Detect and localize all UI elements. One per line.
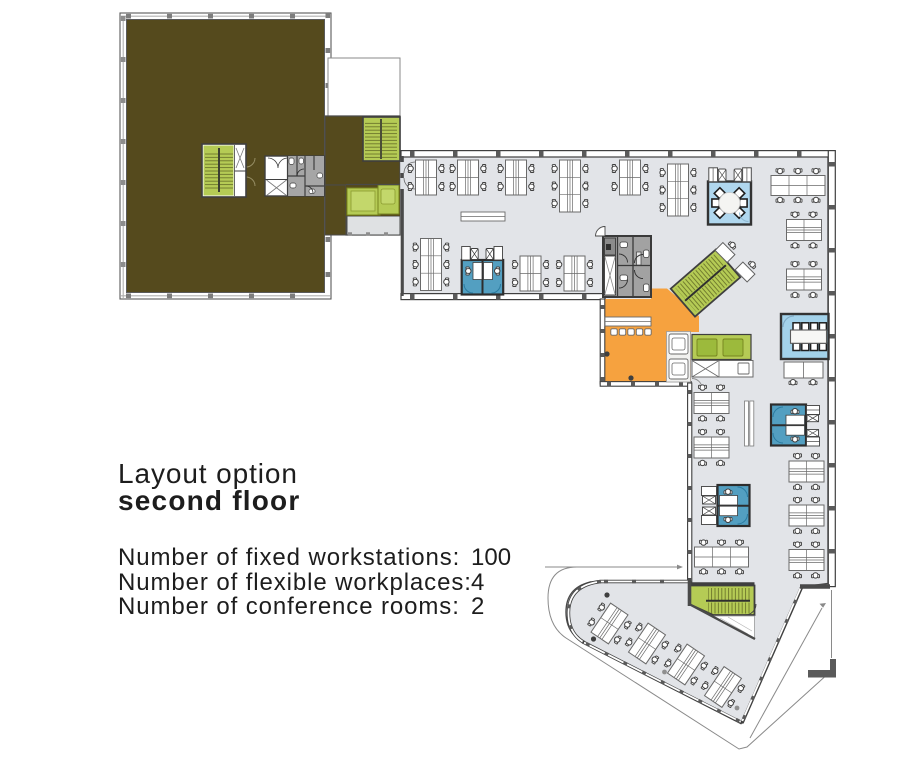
svg-text:100: 100	[471, 544, 511, 571]
svg-text:Number of flexible workplaces:: Number of flexible workplaces:	[118, 569, 472, 596]
svg-text:4: 4	[471, 569, 484, 596]
svg-text:Number of fixed workstations:: Number of fixed workstations:	[118, 544, 460, 571]
svg-text:2: 2	[471, 593, 484, 620]
svg-text:second floor: second floor	[118, 485, 300, 516]
svg-text:Number of conference rooms:: Number of conference rooms:	[118, 593, 460, 620]
